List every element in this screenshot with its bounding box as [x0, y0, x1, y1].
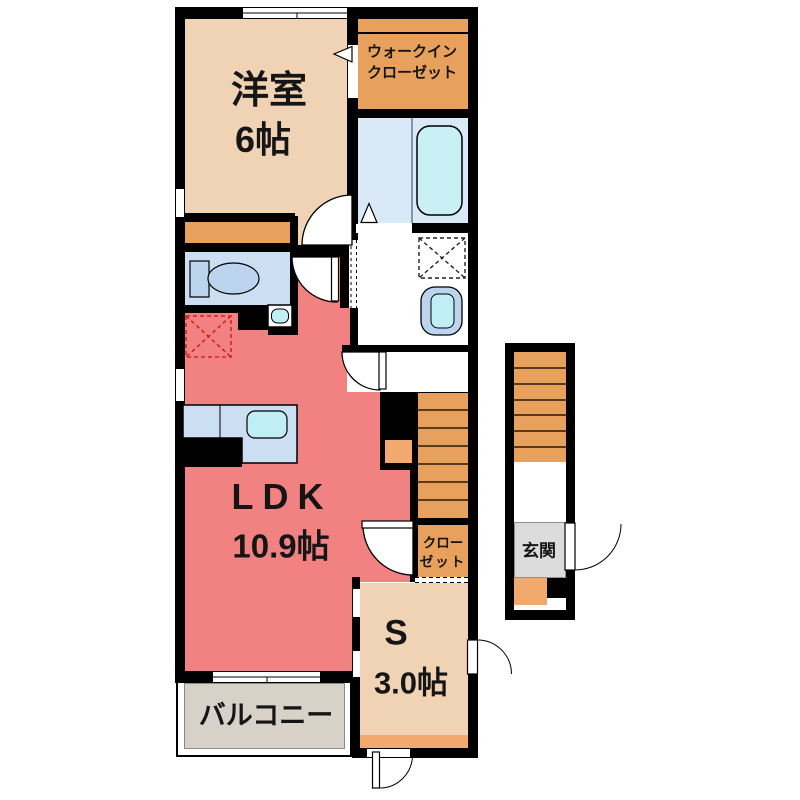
window-ldk-bottom	[213, 672, 320, 682]
service-room-size: 3.0帖	[374, 668, 448, 699]
room-bathroom	[356, 118, 468, 223]
room-washroom	[350, 233, 468, 345]
closet-label-line1: クロー	[423, 536, 464, 550]
western-room-size: 6帖	[235, 122, 291, 158]
room-ldk-east2	[380, 470, 410, 582]
window-service-left-2	[353, 650, 361, 678]
wall-washroom-lower	[350, 308, 358, 345]
wall-bath-bottom	[412, 223, 478, 233]
entrance-wall-right	[566, 343, 575, 620]
service-bottom-door-gap	[367, 749, 410, 757]
window-top	[243, 8, 347, 18]
room-ldk-east1	[352, 392, 380, 582]
wall-closetstrip-bottom	[175, 243, 298, 252]
wall-toilet-right	[290, 216, 298, 305]
balcony-label: バルコニー	[199, 703, 333, 730]
stairs-main	[418, 392, 468, 519]
wall-left	[175, 7, 185, 683]
entrance-wall-bottom	[505, 610, 575, 620]
room-service	[360, 583, 468, 735]
entrance-hall	[514, 462, 566, 522]
entrance-notch	[547, 578, 566, 598]
stair-hall	[347, 352, 468, 392]
wic-label-line2: クローゼット	[367, 66, 457, 81]
service-right-door-gap	[469, 640, 478, 674]
wall-stairs-bottom	[410, 518, 468, 525]
wic-entry-gap	[348, 45, 358, 98]
entrance-wall-left	[505, 343, 514, 620]
wall-wic-bath	[347, 109, 478, 118]
wall-washroom-bottom	[342, 345, 478, 352]
ldk-size: 10.9帖	[232, 530, 329, 563]
wic-shelf-line	[356, 32, 468, 34]
entrance-door-gap	[566, 523, 575, 570]
stairs-entrance	[514, 352, 566, 462]
service-room-label: S	[384, 616, 407, 651]
service-right-door-arc	[478, 640, 512, 674]
entrance-door-arc	[575, 524, 621, 570]
wic-label-line1: ウォークイン	[367, 45, 457, 60]
wall-sink-bottom	[268, 327, 298, 335]
room-toilet	[185, 252, 290, 305]
wall-western-wic	[347, 7, 358, 233]
window-service-left-1	[353, 588, 361, 618]
window-ldk-left	[176, 368, 184, 402]
entrance-label: 玄関	[522, 543, 556, 560]
wall-kitchen-corner	[180, 438, 242, 467]
bath-entry-threshold	[356, 224, 412, 233]
ldk-label: LDK	[232, 479, 333, 515]
entrance-step	[514, 578, 547, 605]
floor-plan: 洋室 6帖 ウォークイン クローゼット LDK 10.9帖 クロー ゼット S …	[0, 0, 800, 800]
wall-vestibule-right	[340, 257, 350, 308]
western-closet-strip	[185, 222, 293, 243]
stair-landing	[385, 440, 412, 463]
wall-toilet-block	[238, 305, 268, 330]
entrance-wall-top	[505, 343, 575, 352]
service-bottom-door-arc	[380, 755, 413, 788]
closet-label-line2: ゼット	[420, 555, 467, 569]
wall-vestibule	[293, 245, 350, 257]
wall-closet-left	[410, 470, 418, 582]
wall-western-bottom	[175, 213, 295, 222]
window-western-left	[176, 188, 184, 218]
wall-washroom-upper	[350, 233, 358, 245]
western-room-label: 洋室	[231, 72, 307, 110]
